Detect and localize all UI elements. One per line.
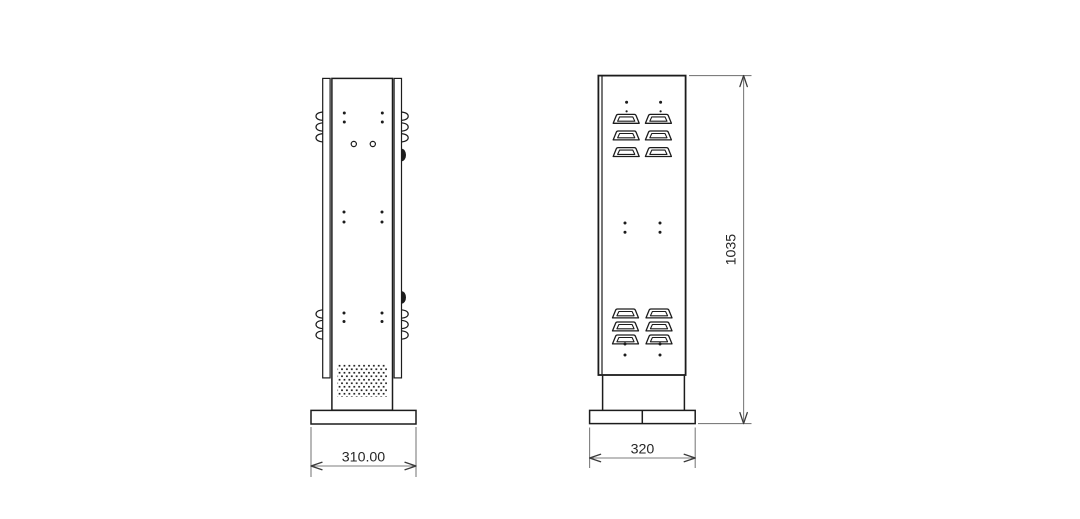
side-hole-dots [343, 112, 384, 324]
technical-drawing-canvas: 310.00 [0, 0, 1080, 519]
side-hole-circle-right [370, 141, 375, 146]
side-louver-bumps-lower-left [316, 310, 323, 339]
side-view: 310.00 [311, 78, 416, 477]
side-base-plate [311, 410, 416, 424]
dimension-label-front-base-width: 320 [631, 442, 655, 458]
front-height-dimension: 1035 [689, 76, 752, 424]
side-left-rail [323, 78, 330, 378]
speaker-grille [338, 364, 388, 398]
front-base-dimension: 320 [590, 428, 696, 469]
side-louver-bumps-upper-left [316, 112, 323, 142]
side-louver-bumps-lower-right [401, 310, 408, 339]
side-body [332, 78, 393, 410]
dimension-label-front-height: 1035 [724, 234, 740, 266]
side-lock-bump-upper [402, 149, 406, 161]
front-view: 320 1035 [590, 76, 752, 468]
side-lock-bump-lower [402, 291, 406, 303]
front-body [598, 76, 685, 375]
louver-panel-bottom [613, 309, 673, 344]
side-right-rail [394, 78, 401, 378]
dimension-label-side-base-width: 310.00 [342, 450, 386, 466]
side-base-dimension: 310.00 [311, 427, 416, 477]
side-hole-circle-left [351, 141, 356, 146]
louver-panel-top [613, 114, 671, 156]
side-louver-bumps-upper-right [401, 112, 408, 142]
front-pedestal [603, 376, 685, 411]
